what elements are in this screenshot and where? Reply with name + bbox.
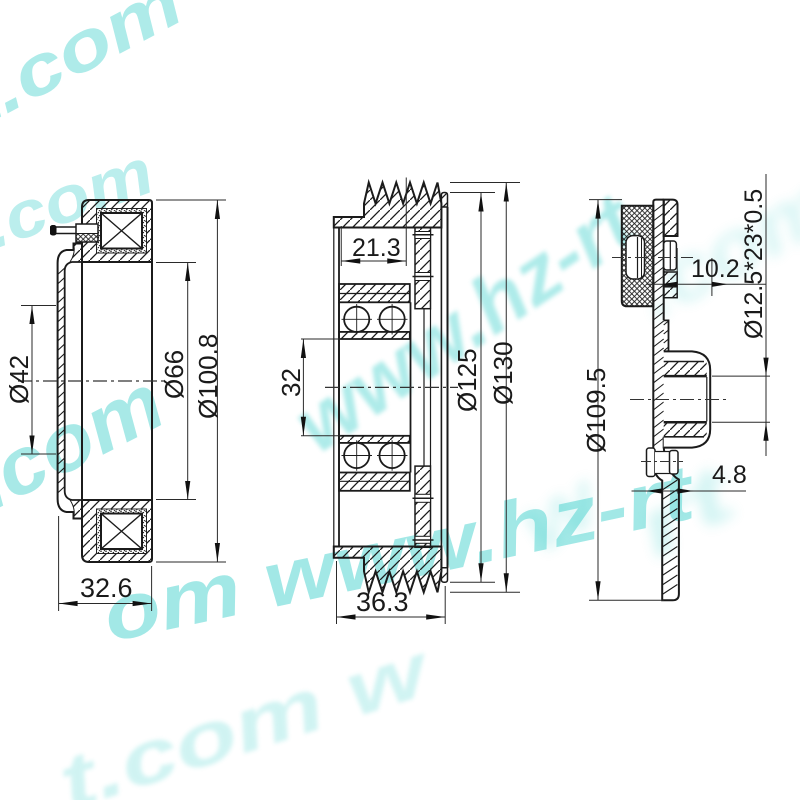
svg-text:Ø100.8: Ø100.8 xyxy=(193,334,223,419)
svg-text:21.3: 21.3 xyxy=(352,234,401,262)
svg-text:Ø125: Ø125 xyxy=(452,348,482,412)
svg-text:32: 32 xyxy=(276,368,306,397)
svg-text:32.6: 32.6 xyxy=(80,573,133,603)
svg-text:Ø109.5: Ø109.5 xyxy=(581,368,611,453)
svg-text:Ø42: Ø42 xyxy=(4,355,34,404)
svg-text:4.8: 4.8 xyxy=(712,461,747,489)
svg-text:36.3: 36.3 xyxy=(356,587,409,617)
svg-text:Ø12.5*23*0.5: Ø12.5*23*0.5 xyxy=(740,189,768,339)
svg-text:10.2: 10.2 xyxy=(691,255,740,283)
svg-text:Ø66: Ø66 xyxy=(159,350,189,399)
svg-text:Ø130: Ø130 xyxy=(488,341,518,405)
